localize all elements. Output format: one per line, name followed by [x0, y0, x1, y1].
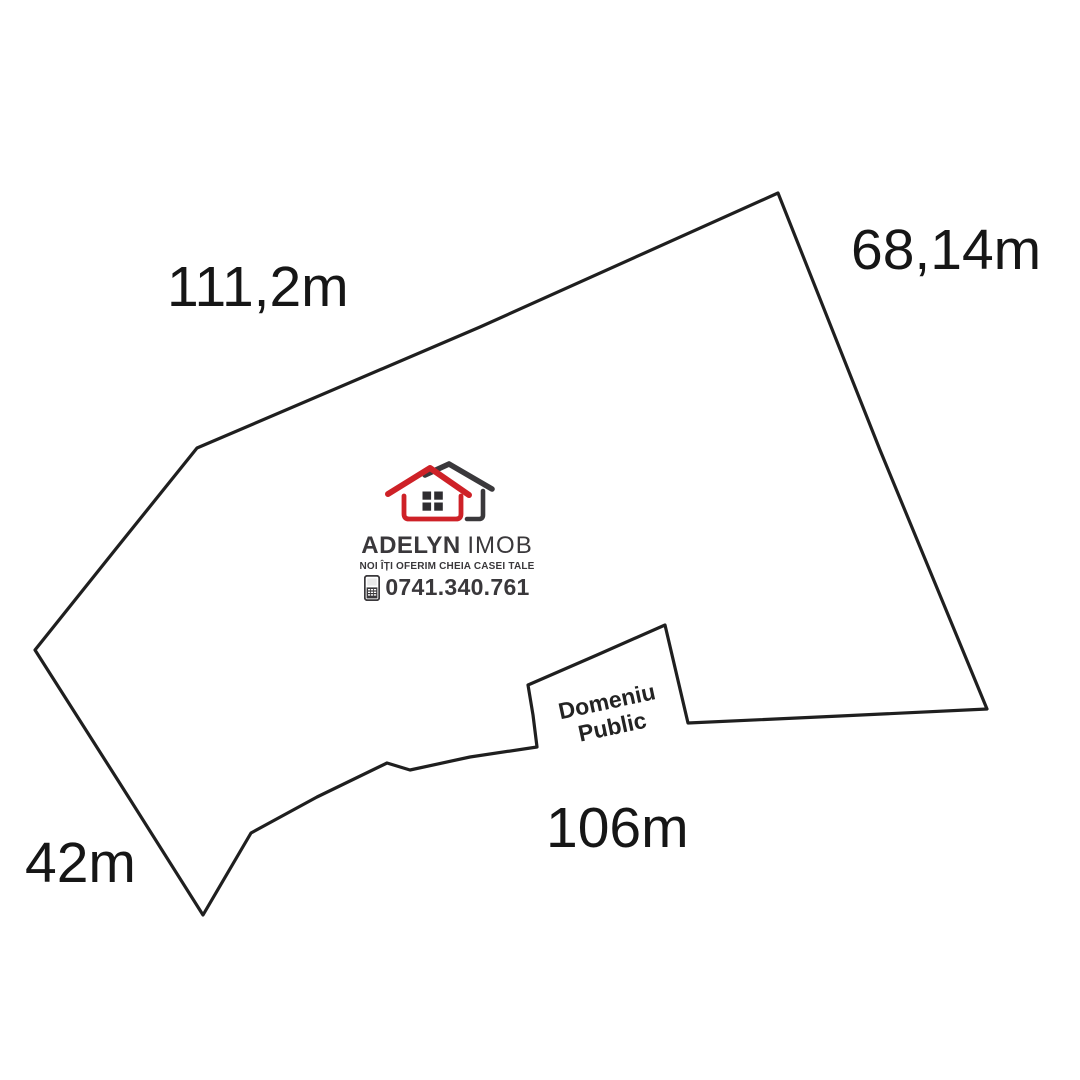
- measurement-label-top-side: 111,2m: [167, 258, 349, 318]
- measurement-label-left-side: 42m: [25, 834, 136, 894]
- agency-logo: ADELYN IMOB NOI ÎȚI OFERIM CHEIA CASEI T…: [347, 455, 547, 601]
- logo-tagline: NOI ÎȚI OFERIM CHEIA CASEI TALE: [347, 561, 547, 572]
- logo-name-secondary: IMOB: [467, 532, 532, 559]
- mobile-phone-icon: [364, 575, 380, 601]
- phone-number: 0741.340.761: [385, 574, 529, 601]
- house-window: [422, 492, 442, 511]
- logo-wordmark: ADELYN IMOB: [347, 533, 547, 559]
- logo-name-primary: ADELYN: [361, 532, 460, 559]
- land-plot-sketch: 111,2m 68,14m 42m 106m Domeniu Public: [0, 0, 1080, 1080]
- measurement-label-right-side: 68,14m: [851, 221, 1041, 281]
- measurement-label-bottom-side: 106m: [546, 799, 689, 859]
- house-logo-icon: [379, 455, 516, 535]
- phone-row: 0741.340.761: [347, 574, 547, 601]
